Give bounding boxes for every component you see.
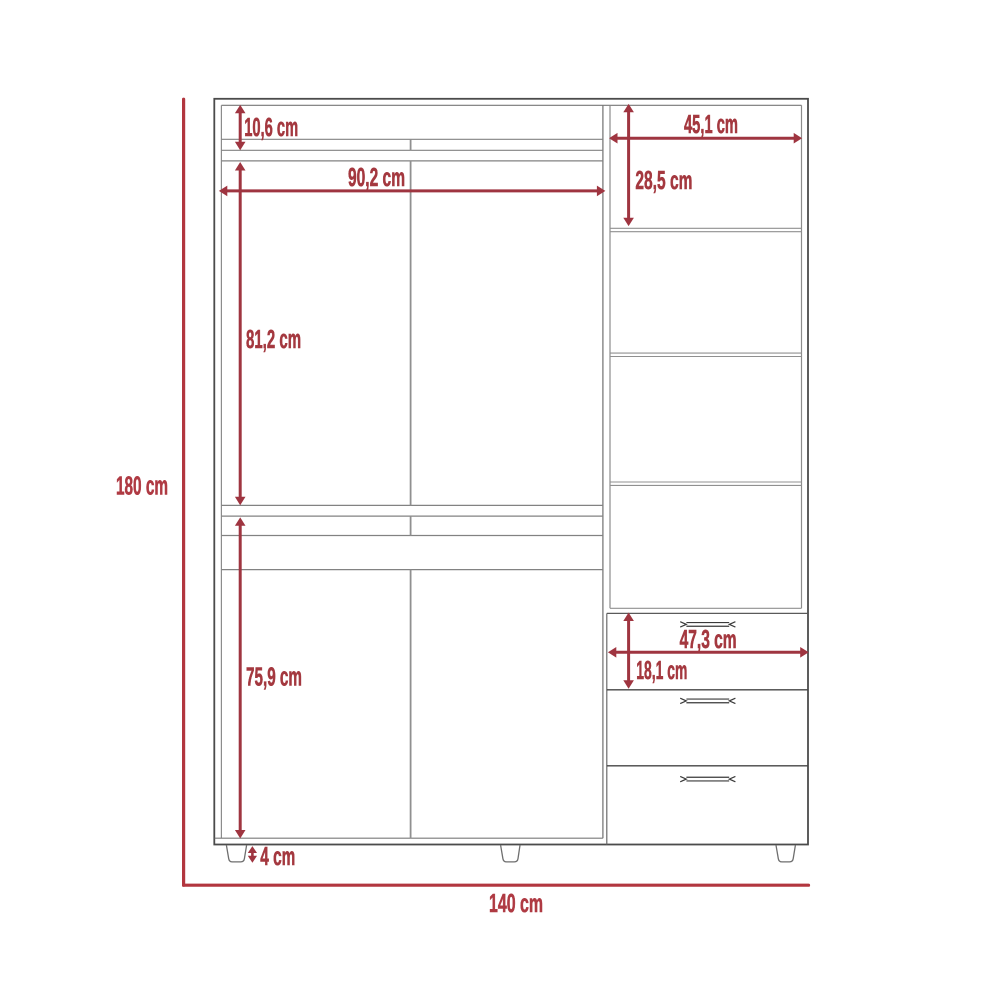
svg-text:75,9 cm: 75,9 cm (246, 662, 302, 691)
svg-text:47,3 cm: 47,3 cm (680, 625, 737, 654)
svg-text:28,5 cm: 28,5 cm (635, 166, 692, 195)
svg-text:140 cm: 140 cm (489, 888, 543, 918)
svg-text:180 cm: 180 cm (116, 471, 168, 500)
svg-text:18,1 cm: 18,1 cm (636, 657, 687, 686)
svg-text:10,6 cm: 10,6 cm (244, 114, 298, 142)
svg-text:45,1 cm: 45,1 cm (684, 111, 738, 139)
svg-text:81,2 cm: 81,2 cm (246, 326, 301, 354)
svg-text:90,2 cm: 90,2 cm (348, 163, 405, 192)
svg-text:4 cm: 4 cm (260, 842, 295, 871)
